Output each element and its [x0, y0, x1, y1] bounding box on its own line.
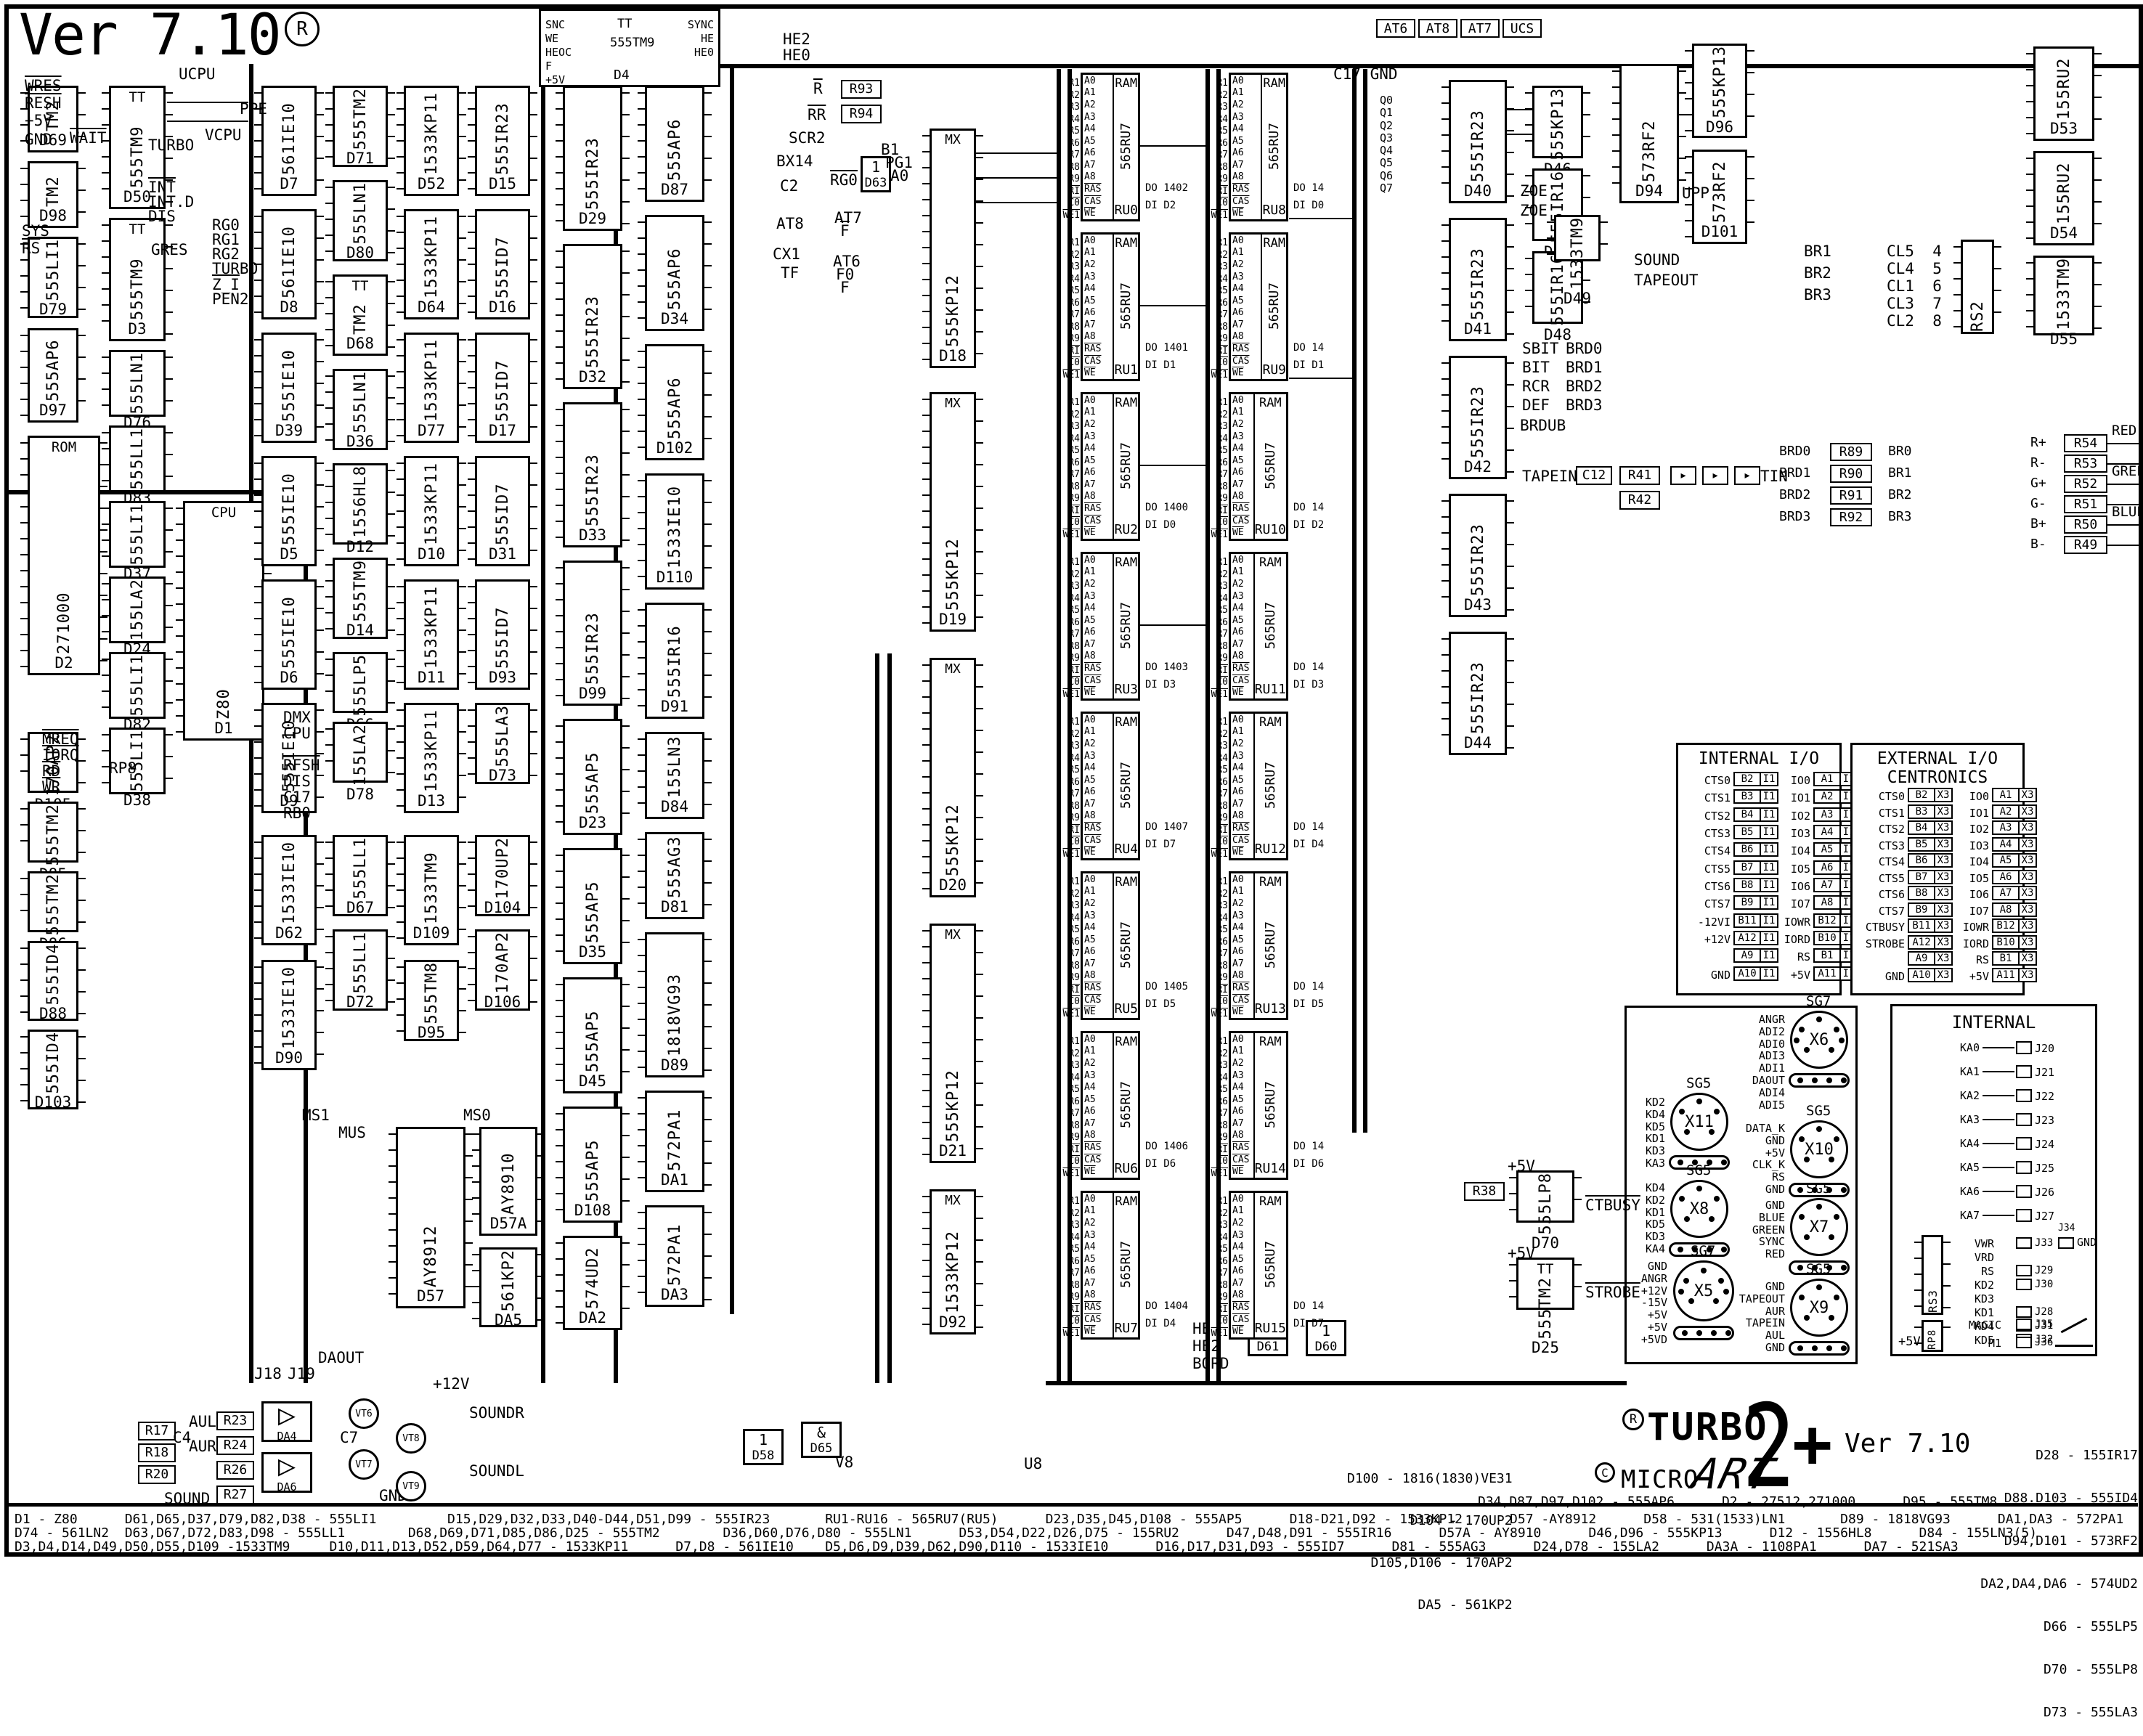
ram-pin-col: A0A1A2A3A4A5A6A7A8RASCASWE [1231, 235, 1262, 379]
ram-row-sig: R3 [1197, 1060, 1228, 1071]
ic-ref-label: D39 [275, 422, 303, 441]
brd-in-label: BRD2 [1779, 489, 1810, 502]
ram-row-sig: R6 [1049, 138, 1080, 149]
io-pin: B5 [1909, 839, 1935, 850]
ram-row-sig: R9 [1197, 1292, 1228, 1303]
gate-D65: &D65 [801, 1422, 842, 1458]
ic-D76: 555LN1D76 [109, 350, 166, 417]
ic-part-label: 1533KP11 [423, 211, 441, 298]
parts-list-line-3: D3,D4,D14,D49,D50,D55,D109 -1533TM9 D10,… [15, 1541, 1959, 1554]
ic-part-label: 555TM9 [351, 560, 370, 622]
io-signal: CTS0 [1857, 790, 1905, 803]
rgb-out-label: RED [2112, 424, 2136, 438]
io-signal: CTS4 [1857, 855, 1905, 868]
label-SOUNDL: SOUNDL [469, 1464, 524, 1479]
io-pin: B1 [1815, 950, 1841, 961]
ram-row-sig: WE1 [1197, 210, 1228, 221]
ic-ref-label: D49 [1563, 290, 1591, 309]
ram-do-label: DO 1400 [1145, 502, 1188, 513]
internal-magic-signal: MAGIC [1951, 1319, 2001, 1332]
ic-part-label: 555AP5 [584, 1109, 602, 1202]
wire [1983, 1191, 2014, 1192]
ic-ref-label: D67 [346, 899, 374, 918]
ram-body: RAM565RU7RU5 [1114, 873, 1138, 1018]
ic-part-label: 1533KP11 [423, 88, 441, 175]
ram-title: RAM [1115, 555, 1137, 570]
ic-part-label: 555AP6 [666, 88, 684, 181]
ic-part-label: 555IE10 [280, 582, 298, 669]
io-signal: RS [1941, 953, 1989, 966]
rbox-R89: R89 [1830, 443, 1872, 461]
ic-inner-label: MX [945, 1191, 961, 1208]
ram-row-sig: R3 [1049, 102, 1080, 113]
rgb-out-label: GREEN [2112, 465, 2143, 478]
ram-pin-label: A1 [1084, 887, 1113, 896]
ic-D73: 555LA3D73 [475, 703, 530, 784]
ic-ref-label: D3 [128, 320, 146, 339]
ic-D64: 1533KP11D64 [404, 209, 459, 319]
label-AUL: AUL [189, 1414, 216, 1430]
opamp-triangle-icon: ▷ [278, 1451, 296, 1480]
ram-pin-label: A0 [1232, 76, 1261, 86]
ram-row-sig: R3 [1197, 741, 1228, 751]
ram-pin-label: A0 [1232, 396, 1253, 405]
ic-ref-label: D103 [35, 1093, 72, 1112]
opamp-ref-label: DA6 [277, 1480, 296, 1493]
ic-part-label: 555ID7 [494, 458, 512, 545]
ic-part-label: 555IR23 [1469, 496, 1487, 596]
ram-row-sig: R2 [1197, 569, 1228, 580]
ram-pin-label: A6 [1232, 627, 1253, 637]
io-pin: B11 [1735, 915, 1761, 926]
label-TAPEOUT: TAPEOUT [1634, 273, 1699, 288]
gate-glyph: 1 [871, 158, 880, 176]
parts-mid-line: DA5 - 561KP2 [1347, 1599, 1513, 1615]
ram-RU3: A0A1A2A3A4A5A6A7A8RASCASWERAM565RU7RU3R1… [1081, 552, 1140, 701]
ram-pin-label: A2 [1084, 420, 1113, 429]
ram-title: RAM [1259, 396, 1282, 410]
logo-micro: MICRO [1621, 1465, 1699, 1494]
ram-di-label: DI D6 [1145, 1158, 1176, 1170]
ram-pin-label: A0 [1084, 715, 1113, 725]
ic-D8: 561IE10D8 [261, 209, 317, 319]
ram-row-sig: R5 [1049, 924, 1080, 935]
connector-pin-dot [1816, 1016, 1822, 1022]
connector-type-label: SG7 [1806, 993, 1831, 1009]
label-BRD2: BRD2 [1566, 379, 1603, 394]
label-RESH: RESH [25, 96, 62, 111]
connector-pin-dot [1816, 1204, 1822, 1210]
label-RB0: RB0 [283, 806, 311, 821]
ram-part-label: 565RU7 [1118, 442, 1134, 489]
ram-pin-label: A4 [1084, 284, 1113, 293]
ram-row-sig: R4 [1049, 1072, 1080, 1083]
ram-body: RAM565RU7RU3 [1114, 554, 1138, 698]
ram-do-label: DO 14 [1293, 1300, 1324, 1312]
wire [1140, 465, 1205, 466]
ram-pin-label: RAS [1232, 504, 1253, 513]
ic-D46: 555KP13D46 [1532, 86, 1583, 158]
ic-D106: 170AP2D106 [475, 929, 530, 1011]
ram-pin-col: A0A1A2A3A4A5A6A7A8RASCASWE [1083, 554, 1114, 698]
ram-pin-label: RAS [1084, 823, 1113, 833]
rgb-in-label: G+ [2030, 477, 2046, 490]
ram-row-sig: R7 [1197, 1108, 1228, 1119]
label-RR: RR [808, 107, 826, 123]
ram-row-sig: R9 [1197, 1132, 1228, 1143]
io-pin-cell: A11X3 [1992, 968, 2037, 982]
ic-D6: 555IE10D6 [261, 579, 317, 690]
ic-ref-label: D5 [280, 545, 298, 564]
connector-pin-dot [1839, 1038, 1845, 1043]
ram-row-sig: R3 [1197, 900, 1228, 911]
gate-D58: 1D58 [743, 1429, 784, 1465]
ram-di-label: DI D0 [1145, 519, 1176, 531]
ic-part-label: 555AP6 [666, 346, 684, 439]
io-pin: B12 [1815, 915, 1841, 926]
ic-ref-label: D38 [123, 791, 151, 810]
bus-vertical [730, 64, 734, 1314]
io-tag: X3 [2020, 839, 2036, 850]
opamp-DA6: ▷DA6 [261, 1452, 312, 1493]
ram-row-sig: R8 [1197, 1120, 1228, 1131]
ram-pin-label: CAS [1232, 1155, 1253, 1165]
ram-pin-label: CAS [1084, 516, 1113, 526]
ram-part-label: 565RU7 [1118, 123, 1134, 170]
ic-DA1: 572PA1DA1 [645, 1091, 704, 1192]
wire [2107, 443, 2139, 444]
internal-conn-name: J33 [2035, 1237, 2053, 1249]
connector-pin-dot [1816, 1284, 1822, 1290]
ram-pin-label: A6 [1084, 148, 1113, 158]
ic-part-label: 555LA3 [494, 705, 512, 767]
ram-row-sig: R9 [1197, 493, 1228, 504]
ram-pin-label: A0 [1084, 396, 1113, 405]
io-pin: A8 [1993, 904, 2020, 916]
ram-row-sig: R9 [1049, 653, 1080, 664]
io-pin: A10 [1735, 968, 1761, 979]
ic-ref-label: D53 [2050, 120, 2078, 139]
ram-row-sig: R2 [1197, 90, 1228, 101]
io-tag: X3 [2020, 937, 2036, 948]
internal-title: INTERNAL [1892, 1012, 2095, 1032]
ic-D12: 1556HL8D12 [333, 463, 388, 545]
ram-row-sig: R1 [1197, 717, 1228, 728]
ic-ref-label: D31 [489, 545, 516, 564]
io-pin: A11 [1815, 968, 1841, 979]
ram-pin-label: A1 [1232, 88, 1261, 97]
ram-body: RAM565RU7RU7 [1114, 1193, 1138, 1337]
label-VCPU: VCPU [205, 128, 242, 143]
internal-conn-box [2016, 1337, 2032, 1348]
ram-row-sig: R8 [1049, 1280, 1080, 1291]
ic-D2: ROM271000D2 [28, 436, 100, 675]
parts-right-line: D66 - 555LP5 [1910, 1621, 2138, 1637]
label-DIS: DIS [148, 209, 176, 224]
ram-pin-label: WE [1232, 847, 1253, 857]
ram-row-sig: RI [1049, 346, 1080, 356]
ram-pin-label: A4 [1084, 763, 1113, 773]
ic-ref-label: D57 [417, 1287, 444, 1306]
ram-row-sig: C0 [1049, 1156, 1080, 1167]
internal-conn-name: J24 [2035, 1138, 2054, 1151]
rbox-R53: R53 [2064, 455, 2107, 473]
connector-type-label: SG5 [1806, 1181, 1831, 1197]
io-pin: A11 [1993, 969, 2020, 981]
ic-side-label: TT [129, 88, 146, 105]
ic-D57A: AY8910D57A [479, 1127, 537, 1236]
ic-D72: 555LL1D72 [333, 929, 388, 1011]
internal-conn-name: J20 [2035, 1042, 2054, 1055]
connector-pin-dot [1688, 1298, 1694, 1304]
ram-pin-col: A0A1A2A3A4A5A6A7A8RASCASWE [1083, 235, 1114, 379]
ic-D14: 555TM9D14 [333, 558, 388, 639]
ram-title: RAM [1259, 1194, 1282, 1209]
wire [976, 177, 1057, 179]
connector-pin-dot [1701, 1268, 1707, 1274]
ic-ref-label: D79 [39, 301, 67, 319]
ram-RU15: A0A1A2A3A4A5A6A7A8RASCASWERAM565RU7RU15R… [1229, 1191, 1288, 1340]
connector-pill-dot [1812, 1345, 1818, 1351]
ram-row-sig: C0 [1197, 677, 1228, 688]
io-pin: A4 [1815, 826, 1841, 838]
label-SOUND: SOUND [1634, 253, 1680, 268]
io-pin: A10 [1909, 969, 1935, 981]
ram-pin-label: A6 [1084, 1266, 1113, 1276]
ram-RU9: A0A1A2A3A4A5A6A7A8RASCASWERAM565RU7RU9R1… [1229, 232, 1288, 381]
ram-pin-col: A0A1A2A3A4A5A6A7A8RASCASWE [1083, 1033, 1114, 1178]
io-pin: B9 [1909, 904, 1935, 916]
ic-D49: 1533TM9D49 [1554, 215, 1601, 261]
ram-row-sig: RI [1049, 186, 1080, 197]
ram-pin-col: A0A1A2A3A4A5A6A7A8RASCASWE [1231, 873, 1255, 1018]
io-signal: IO6 [1941, 888, 1989, 901]
ic-part-label: 555ID4 [44, 1032, 62, 1093]
ram-pin-label: WE [1232, 688, 1253, 697]
diode-icon: ▸ [1702, 466, 1728, 485]
ram-row-sig: R7 [1049, 788, 1080, 799]
ram-pin-label: A4 [1232, 763, 1253, 773]
ic-part-label: 1533KP11 [423, 705, 441, 792]
ram-row-sig: RI [1197, 1304, 1228, 1315]
ic-ref-label: D45 [579, 1072, 606, 1091]
io-signal: IOWR [1941, 921, 1989, 934]
ram-pin-label: A0 [1232, 236, 1261, 245]
ic-ref-label: D2 [54, 654, 73, 673]
io-signal: +5V [1762, 969, 1810, 982]
ram-di-label: DI D4 [1293, 839, 1324, 850]
ram-title: RAM [1115, 396, 1137, 410]
ram-part-label: 565RU7 [1118, 1241, 1134, 1288]
ic-DA5: 561KP2DA5 [479, 1247, 537, 1327]
ic-D97: 555AP6D97 [28, 328, 78, 423]
ram-body: RAM565RU7RU14 [1255, 1033, 1286, 1178]
parts-right-line: D88.D103 - 555ID4 [1910, 1492, 2138, 1509]
ic-part-label: 555IR23 [1469, 634, 1487, 734]
connector-pin-dot [1684, 1216, 1690, 1222]
ic-ref-label: D8 [280, 298, 298, 317]
ic-ref-label: D42 [1464, 458, 1492, 477]
ic-part-label: 1533TM9 [1569, 217, 1587, 290]
ic-part-label: AY8912 [422, 1129, 440, 1287]
rs3-pack: RS3 [1922, 1235, 1943, 1315]
internal-mid-signal: KD1 [1951, 1306, 1994, 1319]
ram-pin-label: A5 [1084, 775, 1113, 785]
ram-row-sig: R2 [1049, 889, 1080, 900]
ram-pin-label: A2 [1084, 579, 1113, 589]
label-AT8: AT8 [776, 216, 804, 232]
sync-left-sig: SNC [545, 18, 589, 31]
ic-part-label: 555AP6 [666, 217, 684, 310]
rs2-pack: RS2 [1961, 240, 1994, 334]
ic-part-label: 555AP5 [584, 721, 602, 814]
ram-di-label: DI D4 [1145, 1318, 1176, 1329]
ram-part-label: 565RU7 [1118, 762, 1134, 809]
ram-body: RAM565RU7RU4 [1114, 714, 1138, 858]
connector-pin-dot [1804, 1315, 1810, 1321]
io-pin-cell: A8X3 [1992, 902, 2037, 917]
io-pin-cell: B1X3 [1992, 951, 2037, 966]
ic-D77: 1533KP11D77 [404, 333, 459, 443]
io-pin-cell: A6X3 [1992, 870, 2037, 884]
parts-right-line: D94,D101 - 573RF2 [1910, 1535, 2138, 1552]
io-pin: B1 [1993, 953, 2020, 964]
ram-pin-label: A8 [1232, 332, 1261, 341]
io-pin: B3 [1735, 791, 1761, 802]
ic-ref-label: D52 [418, 175, 445, 194]
ic-part-label: 573RF2 [1711, 152, 1729, 223]
ram-row-sig: WE1 [1197, 849, 1228, 860]
io-pin: A12 [1735, 932, 1761, 944]
label-U8: U8 [1024, 1456, 1042, 1472]
connector-pill-dot [1678, 1247, 1683, 1252]
ram-row-sig: C0 [1049, 836, 1080, 847]
label-GRES: GRES [151, 243, 188, 258]
ic-D54: 155RU2D54 [2033, 151, 2094, 245]
ic-D98: TM2D98 [28, 161, 78, 228]
io-tag: X3 [2020, 920, 2036, 932]
parts-list-mid: D100 - 1816(1830)VE31 D104 - 170UP2 D105… [1347, 1446, 1513, 1628]
diode-icon: ▸ [1734, 466, 1760, 485]
ic-inner-label: MX [945, 926, 961, 942]
ic-part-label: 1533IE10 [666, 476, 684, 569]
ram-name-label: RU13 [1255, 1001, 1286, 1016]
ic-D103: 555ID4D103 [28, 1030, 78, 1109]
wire [167, 121, 248, 122]
ram-row-sig: R9 [1197, 174, 1228, 184]
internal-conn-box [2016, 1306, 2032, 1318]
ram-row-sig: R4 [1049, 433, 1080, 444]
ram-part-label: 565RU7 [1266, 282, 1282, 330]
ram-pin-label: A7 [1232, 160, 1261, 170]
ram-pin-label: RAS [1084, 184, 1113, 194]
ram-title: RAM [1259, 875, 1282, 889]
ic-part-label: 572PA1 [666, 1207, 684, 1286]
ram-pin-label: A4 [1084, 124, 1113, 134]
ram-row-sig: R2 [1197, 729, 1228, 740]
ram-pin-label: A8 [1084, 1290, 1113, 1300]
ram-pin-label: A2 [1084, 899, 1113, 908]
ic-D13: 1533KP11D13 [404, 703, 459, 813]
ram-row-sig: C0 [1049, 197, 1080, 208]
ram-pin-label: A3 [1232, 911, 1253, 921]
connector-pin-dot [1799, 1136, 1805, 1142]
ram-pin-label: A4 [1084, 1083, 1113, 1092]
ram-pin-label: A3 [1232, 272, 1261, 282]
ram-row-sig: R6 [1049, 298, 1080, 309]
ram-pin-label: CAS [1084, 1155, 1113, 1165]
internal-ka-signal: KA5 [1936, 1161, 1980, 1174]
ram-di-label: DI D5 [1293, 998, 1324, 1010]
ram-body: RAM565RU7RU6 [1114, 1033, 1138, 1178]
ram-pin-label: CAS [1232, 356, 1261, 366]
ram-pin-label: CAS [1084, 836, 1113, 845]
ram-title: RAM [1115, 76, 1137, 91]
ram-pin-label: A8 [1232, 172, 1261, 182]
parts-mid-line: D105,D106 - 170AP2 [1347, 1557, 1513, 1573]
wire [1983, 1071, 2014, 1072]
ram-pin-label: WE [1232, 1167, 1253, 1176]
ic-D92: MX1533KP12D92 [930, 1189, 976, 1334]
ram-row-sig: C0 [1049, 1316, 1080, 1327]
label-C7: C7 [340, 1430, 358, 1446]
ram-pin-label: A2 [1232, 899, 1253, 908]
ram-row-sig: R6 [1197, 777, 1228, 788]
logo-two: 2 [1741, 1398, 1795, 1496]
ram-row-sig: R4 [1049, 114, 1080, 125]
io-signal: CTS4 [1683, 844, 1731, 857]
ram-row-sig: RI [1049, 505, 1080, 516]
wire [1140, 305, 1205, 306]
ram-pin-label: A1 [1084, 248, 1113, 257]
ic-D25: TT555TM2D25 [1516, 1258, 1574, 1310]
ram-pin-label: A8 [1084, 492, 1113, 501]
connector-type-label: SG5 [1806, 1261, 1831, 1277]
transistor-VT7: VT7 [349, 1449, 379, 1480]
ram-name-label: RU6 [1114, 1161, 1138, 1176]
ram-row-sig: R1 [1197, 397, 1228, 408]
ram-pin-label: A0 [1084, 236, 1113, 245]
bus-horizontal [1046, 1381, 1627, 1385]
ram-pin-label: A8 [1084, 971, 1113, 980]
io-signal: IO7 [1941, 905, 1989, 918]
io-pin: A3 [1993, 822, 2020, 834]
ram-pin-label: A5 [1084, 616, 1113, 625]
ram-row-sig: WE1 [1197, 689, 1228, 700]
ram-pin-label: A2 [1232, 579, 1253, 589]
ram-row-sig: R6 [1197, 617, 1228, 628]
connector-pill-dot [1826, 1077, 1832, 1083]
wire [2107, 484, 2139, 485]
parts-right-line: D70 - 555LP8 [1910, 1663, 2138, 1680]
ram-row-sig: R7 [1197, 629, 1228, 640]
ram-row-sig: RI [1197, 505, 1228, 516]
ram-row-sig: RI [1049, 1304, 1080, 1315]
io-pin: B10 [1993, 937, 2020, 948]
label-WR: WR [42, 780, 60, 795]
ram-pin-label: A4 [1232, 124, 1261, 134]
label-R: R [813, 81, 823, 97]
ram-pin-label: A5 [1232, 775, 1253, 785]
ram-row-sig: R5 [1197, 285, 1228, 296]
ic-ref-label: D34 [661, 310, 688, 329]
label-J19: J19 [288, 1366, 315, 1382]
ram-pin-label: A8 [1084, 651, 1113, 661]
ic-D41: 555IR23D41 [1449, 218, 1507, 341]
ic-part-label: 1533TM9 [2055, 258, 2073, 330]
io-tag: X3 [2020, 871, 2036, 883]
ram-row-sig: R5 [1049, 126, 1080, 136]
